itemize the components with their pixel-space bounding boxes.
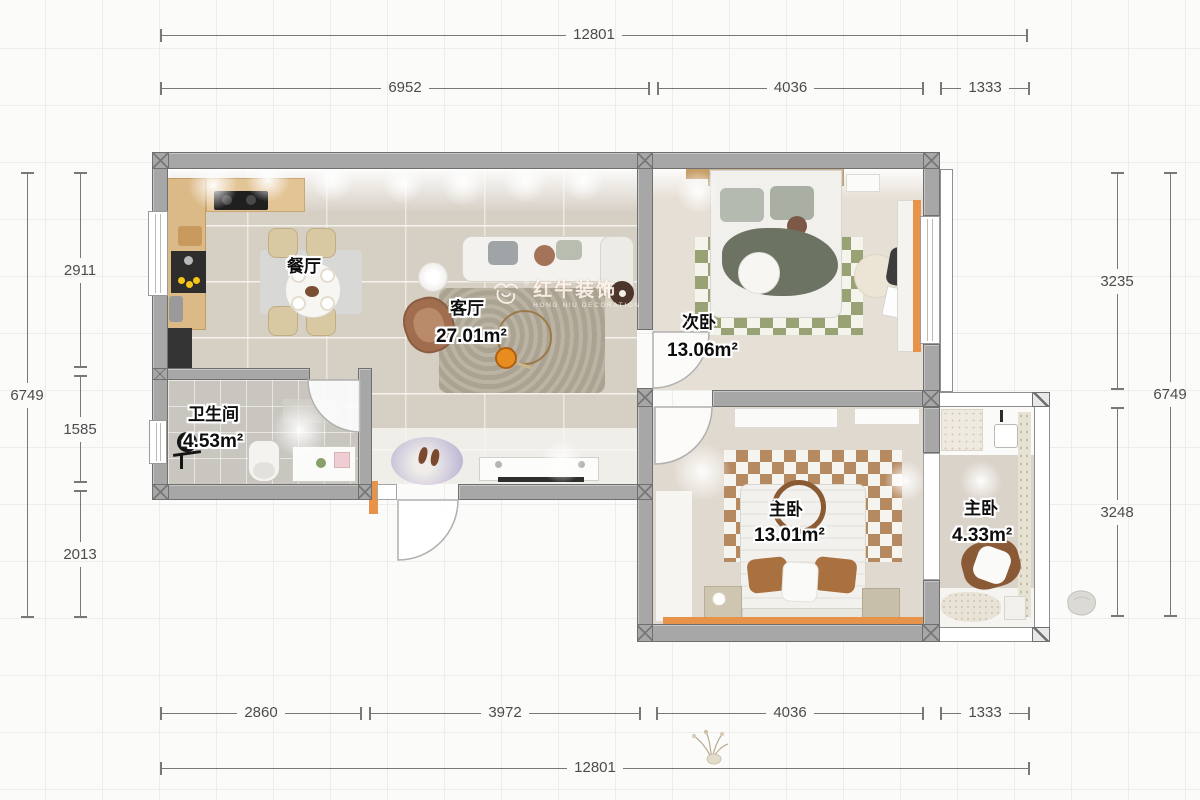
watermark-brand: 红牛装饰 [533,281,641,300]
doors-and-decor-layer [0,0,1200,800]
master-bedroom-area: 13.01m² [754,525,825,547]
watermark-subtitle: HONG NIU DECORATION [533,302,641,309]
bull-logo-icon [492,281,520,307]
entry-door-arc [398,500,458,560]
rock-decor [1068,591,1096,615]
small-master-bedroom-label: 主卧 [964,494,998,519]
bathroom-door-arc [308,380,360,432]
bathroom-area: 4.53m² [183,431,243,453]
master-bedroom-door-arc [655,407,712,464]
small-master-bedroom-area: 4.33m² [952,525,1012,547]
second-bedroom-label: 次卧 [682,308,716,333]
brand-watermark: ® 红牛装饰 HONG NIU DECORATION [492,281,641,309]
living-room-area: 27.01m² [436,326,507,348]
floor-plan-page: 12801 6952 4036 1333 6749 2911 1585 2013 [0,0,1200,800]
bathroom-label: 卫生间 [188,400,239,425]
dried-flower-decor [692,730,728,764]
registered-mark: ® [524,281,529,288]
dining-room-label: 餐厅 [287,252,321,277]
second-bedroom-area: 13.06m² [667,340,738,362]
living-room-label: 客厅 [450,294,484,319]
master-bedroom-label: 主卧 [769,495,803,520]
